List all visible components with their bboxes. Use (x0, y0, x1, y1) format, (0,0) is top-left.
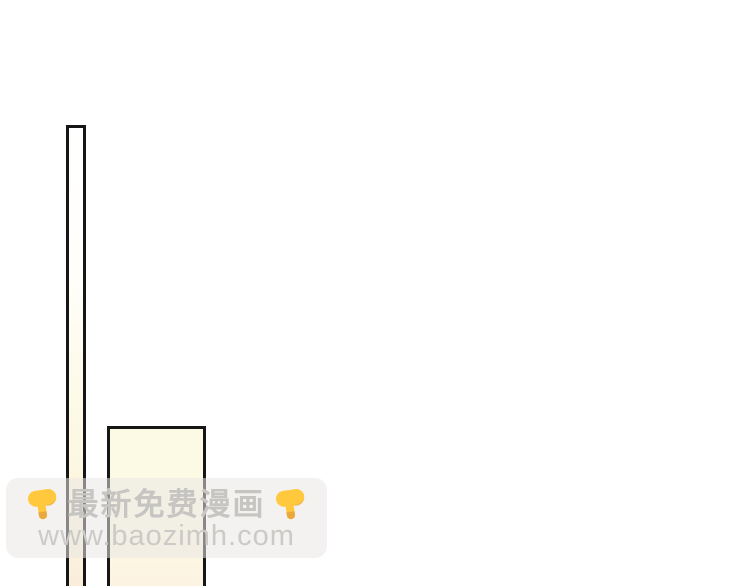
watermark-text: 最新免费漫画 (68, 489, 266, 520)
pointing-down-finger-icon (23, 485, 61, 523)
watermark-title-row: 最新免费漫画 (26, 487, 308, 521)
comic-page: 最新免费漫画 www.baozimh.com (0, 0, 750, 586)
pointing-down-finger-icon (271, 485, 309, 523)
watermark-banner: 最新免费漫画 www.baozimh.com (6, 478, 327, 558)
watermark-url: www.baozimh.com (38, 522, 295, 551)
